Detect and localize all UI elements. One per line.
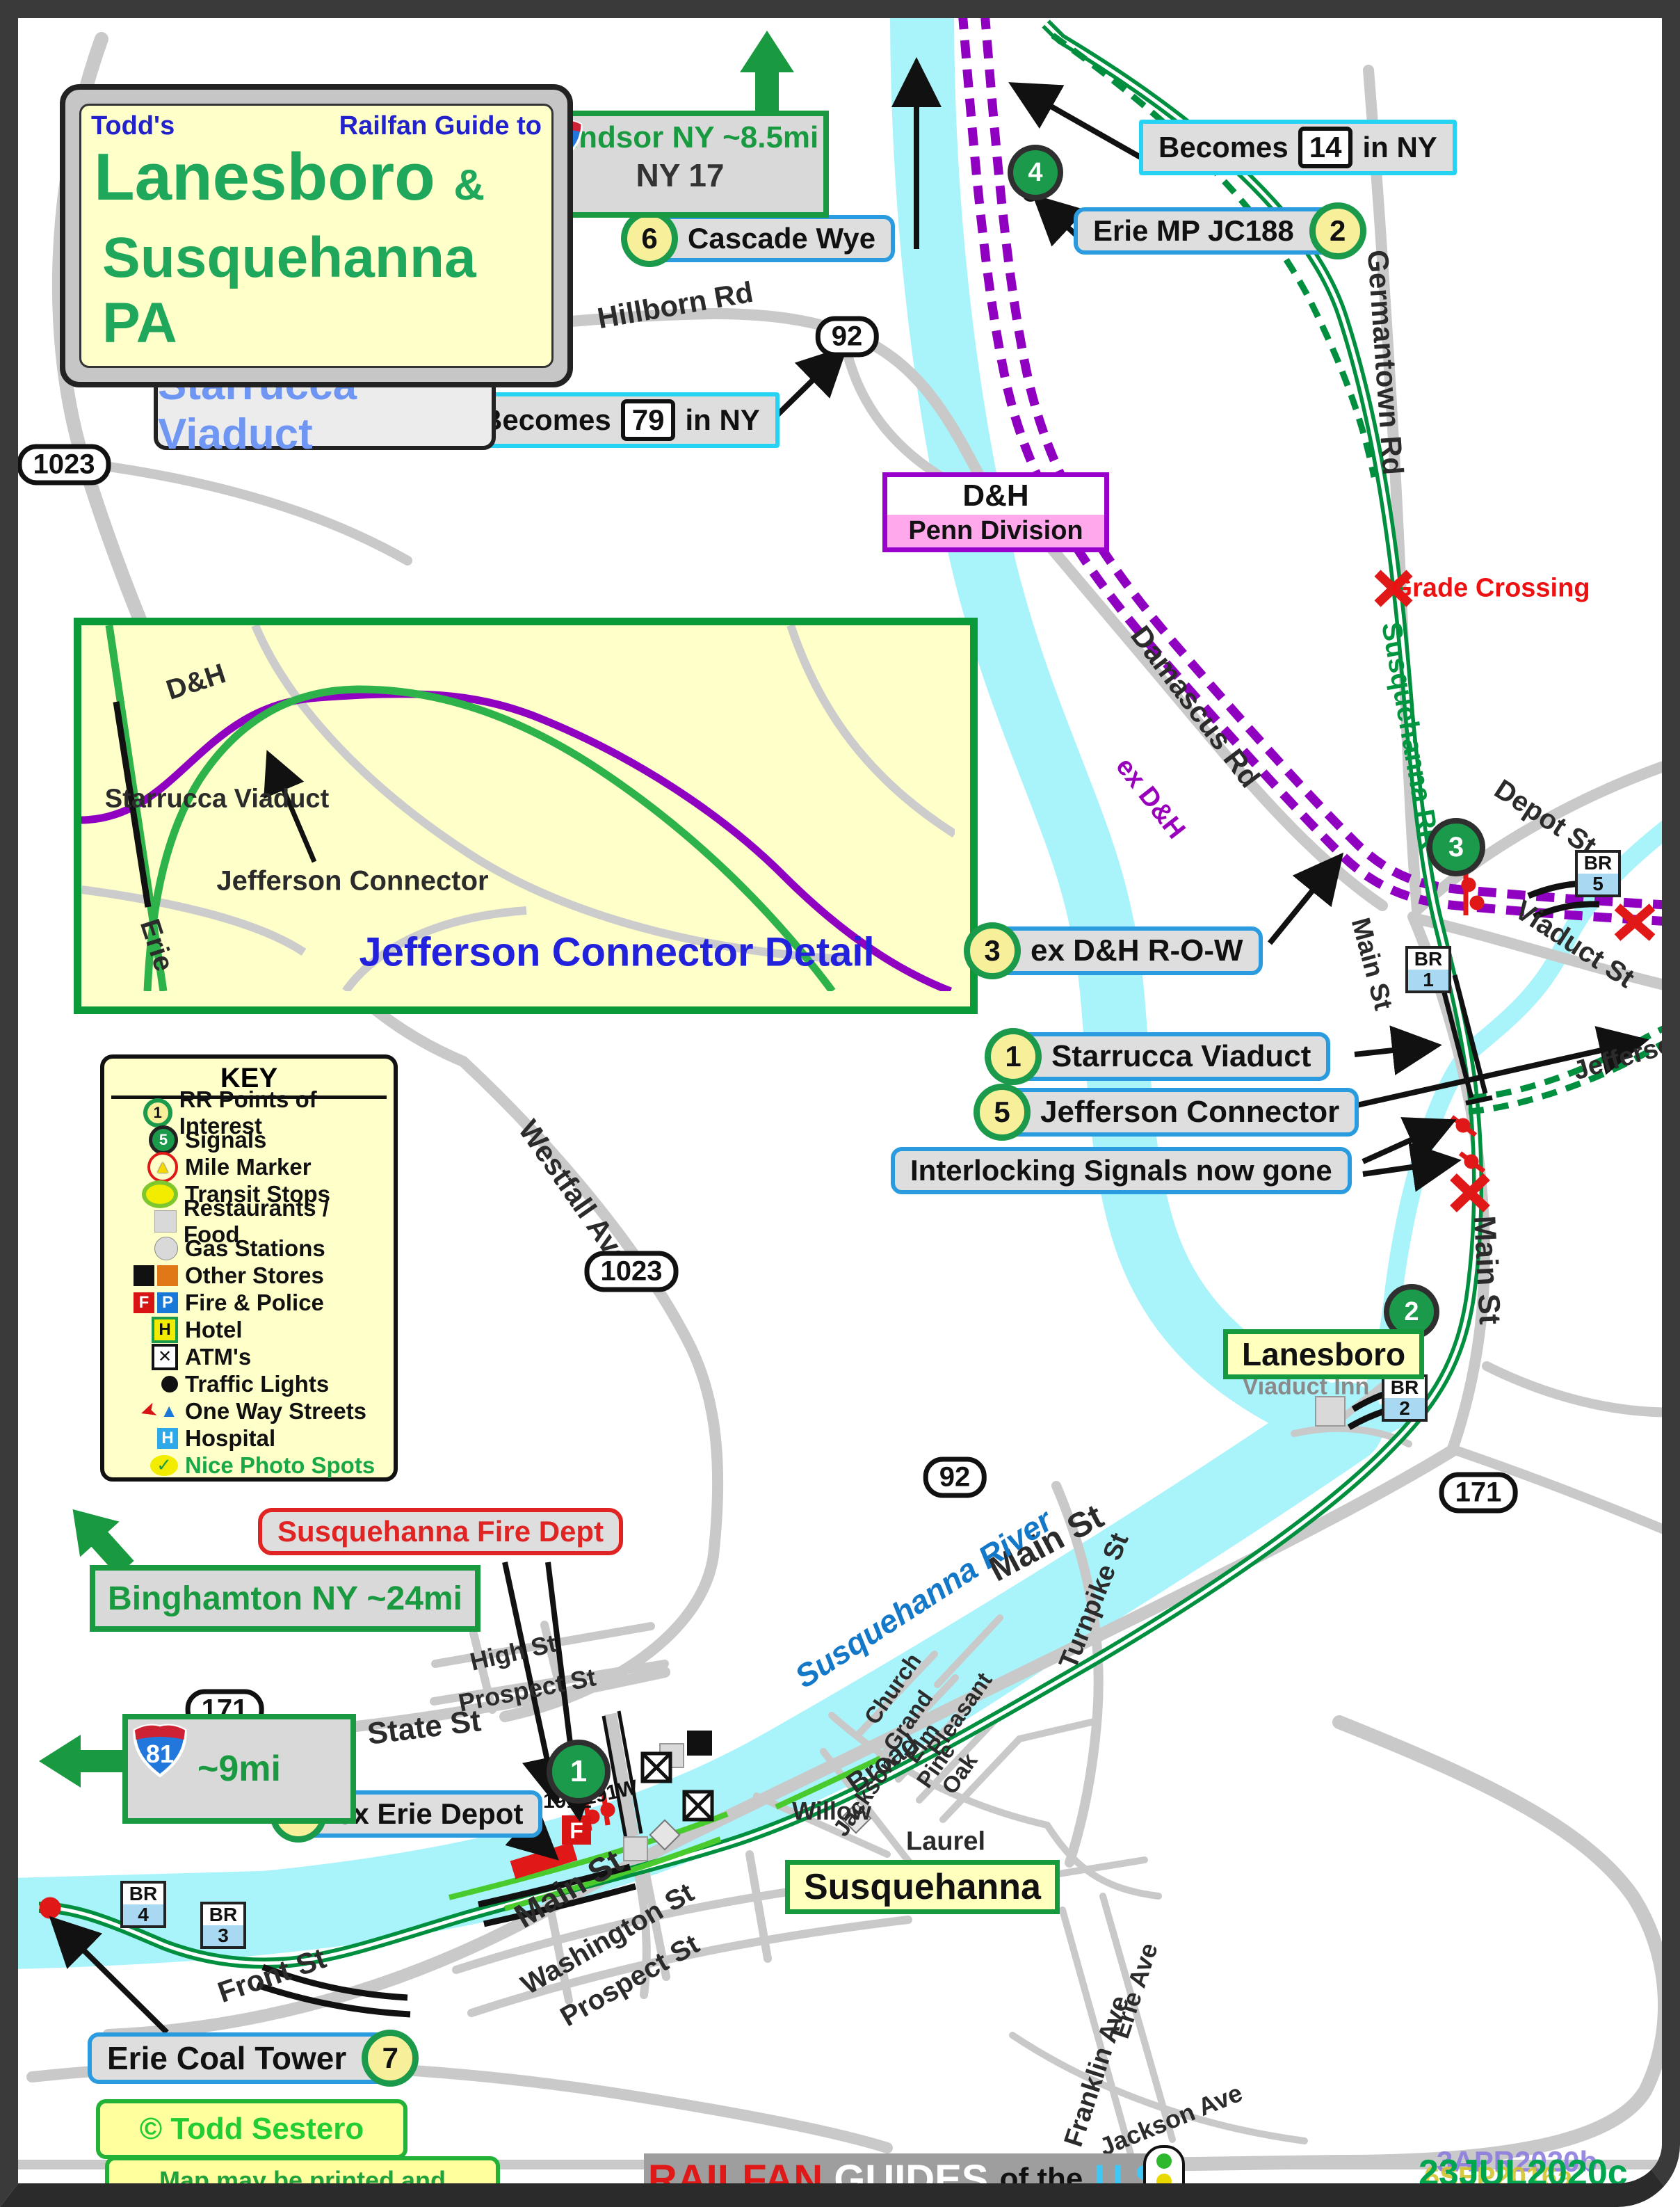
callout-text-after: in NY — [1362, 131, 1437, 164]
grade-crossing-grade-crossing: Grade Crossing — [1391, 574, 1590, 604]
callout-text: ex Erie Depot — [337, 1797, 523, 1831]
key-item-label: Nice Photo Spots — [185, 1452, 375, 1479]
callout-susquehanna-fire-dept: Susquehanna Fire Dept — [258, 1508, 623, 1555]
key-item-label: ATM's — [185, 1344, 251, 1370]
callout-text: Starrucca Viaduct — [1051, 1039, 1311, 1074]
title-line2: Susquehanna PA — [102, 225, 551, 356]
copyright-box: © Todd Sestero — [96, 2099, 407, 2159]
dh-label: D&H — [887, 477, 1104, 515]
i81-shield-icon: 81 — [128, 1719, 192, 1779]
bridge-badge-br4: BR4 — [120, 1881, 166, 1928]
bottom-strip — [18, 2190, 1680, 2207]
callout-text: Becomes — [1158, 131, 1289, 164]
signal-circle-1: 1 — [547, 1740, 611, 1804]
key-item-label: Fire & Police — [185, 1290, 324, 1316]
title-line1: Lanesboro & — [94, 139, 485, 216]
road-label-westfall-ave: Westfall Ave — [512, 1114, 637, 1274]
callout-starrucca-viaduct: Starrucca Viaduct1 — [1011, 1032, 1330, 1081]
ny17-label: NY 17 — [636, 157, 724, 194]
key-item-label: Hospital — [185, 1425, 275, 1452]
bridge-badge-br3: BR3 — [200, 1902, 246, 1949]
map-canvas: F — [0, 0, 1680, 2207]
road-label-main-st: Main St — [1467, 1215, 1507, 1326]
bridge-badge-br1: BR1 — [1405, 946, 1451, 993]
road-label-depot-st: Depot St — [1489, 773, 1601, 862]
key-item-label: Hotel — [185, 1317, 243, 1343]
road-label-jefferson: Jefferson — [1570, 1025, 1680, 1086]
usage-note-2: used for personal use only — [109, 2195, 496, 2207]
road-label-high-st: High St — [467, 1628, 559, 1676]
gas-icon — [111, 1237, 178, 1260]
signal-icon: 5 — [111, 1125, 178, 1155]
callout-erie-mp-jc188: Erie MP JC1882 — [1074, 207, 1340, 255]
key-item-oneway: ➤▲One Way Streets — [111, 1397, 387, 1424]
callout-text-after: in NY — [685, 403, 759, 437]
railfan-guides-logo: RAILFAN GUIDES of the U.S. — [644, 2153, 1177, 2205]
firepolice-icon: FP — [111, 1292, 178, 1313]
road-label-laurel: Laurel — [906, 1827, 985, 1857]
susquehanna-rr-susquehanna-rr: Susquehanna RR — [1375, 620, 1446, 852]
poi-circle-2: 2 — [1309, 202, 1366, 259]
callout-text: Becomes — [481, 403, 611, 437]
key-item-label: Other Stores — [185, 1262, 324, 1289]
road-label-hillborn-rd: Hillborn Rd — [595, 275, 755, 336]
road-label-willow: Willow — [792, 1797, 871, 1826]
callout-text: ex D&H R-O-W — [1031, 933, 1243, 968]
signal-circle-3: 3 — [1427, 818, 1485, 876]
atm-icon: ✕ — [111, 1344, 178, 1370]
route-marker-171: 171 — [1439, 1472, 1518, 1514]
guides-word: GUIDES — [834, 2156, 988, 2203]
poi-circle-5: 5 — [974, 1084, 1031, 1141]
title-panel: Todd's Railfan Guide to Lanesboro & Susq… — [60, 84, 573, 387]
callout-text: Jefferson Connector — [1040, 1095, 1339, 1130]
key-item-milemarker: ▲Mile Marker — [111, 1153, 387, 1180]
key-panel: KEY 1RR Points of Interest5Signals▲Mile … — [100, 1054, 398, 1482]
callout-text: Cascade Wye — [688, 222, 875, 255]
key-item-photo: ✓Nice Photo Spots — [111, 1452, 387, 1479]
poi-circle-3: 3 — [964, 922, 1021, 979]
road-label-viaduct-st: Viaduct St — [1509, 894, 1640, 995]
callout-text: Erie MP JC188 — [1093, 214, 1294, 248]
callout-text: Susquehanna Fire Dept — [277, 1515, 604, 1548]
key-item-label: Traffic Lights — [185, 1371, 329, 1397]
town-box-susquehanna: Susquehanna — [785, 1860, 1060, 1914]
penn-division-label: Penn Division — [887, 515, 1104, 547]
callout-becomes-79: Becomes79in NY — [462, 392, 780, 448]
key-item-traffic: Traffic Lights — [111, 1370, 387, 1397]
callout-jefferson-connector: Jefferson Connector5 — [1000, 1088, 1359, 1137]
signal-circle-4: 4 — [1008, 145, 1063, 200]
milemarker-icon: ▲ — [111, 1152, 178, 1182]
dh-penn-division-box: D&H Penn Division — [882, 472, 1109, 552]
title-guide: Railfan Guide to — [339, 111, 542, 141]
title-inner: Todd's Railfan Guide to Lanesboro & Susq… — [79, 104, 554, 368]
date-stamps: 3APR2020b 6SEP2016a 23JUL2020c — [1409, 2141, 1680, 2207]
poi-circle-7: 7 — [362, 2030, 419, 2087]
restaurant-icon — [111, 1210, 177, 1233]
traffic-signal-icon — [1143, 2145, 1185, 2207]
callout-text: Interlocking Signals now gone — [910, 1154, 1332, 1187]
poi-icon: 1 — [111, 1098, 172, 1127]
callout-text: Erie Coal Tower — [107, 2039, 346, 2077]
road-label-state-st: State St — [366, 1703, 483, 1752]
hotel-icon: H — [111, 1317, 178, 1343]
route-marker-92: 92 — [923, 1457, 987, 1498]
traffic-icon — [111, 1376, 178, 1393]
photo-icon: ✓ — [111, 1455, 178, 1476]
ex-dh-ex-d-h: ex D&H — [1109, 753, 1190, 845]
key-item-label: One Way Streets — [185, 1398, 366, 1424]
callout-cascade-wye: Cascade Wye6 — [647, 215, 895, 262]
title-todds: Todd's — [91, 111, 175, 141]
key-item-label: Gas Stations — [185, 1235, 325, 1262]
callout-becomes-14: Becomes14in NY — [1139, 120, 1457, 175]
road-label-main-st: Main St — [1345, 915, 1398, 1013]
stores-icon — [111, 1265, 178, 1286]
bridge-badge-br5: BR5 — [1575, 850, 1621, 897]
transit-icon — [111, 1180, 178, 1208]
route-marker-92: 92 — [816, 316, 879, 358]
route-number-box: 14 — [1298, 127, 1353, 168]
railfan-word: RAILFAN — [648, 2156, 823, 2203]
bridge-badge-br2: BR2 — [1382, 1374, 1428, 1422]
key-item-poi: 1RR Points of Interest — [111, 1099, 387, 1126]
i81-text: ~9mi — [197, 1748, 281, 1790]
binghamton-text: Binghamton NY ~24mi — [108, 1580, 462, 1618]
ofthe-word: of the — [1000, 2162, 1083, 2197]
i81-sign: 81 ~9mi — [122, 1714, 356, 1824]
usage-note-box: Map may be printed and used for personal… — [105, 2156, 500, 2207]
key-item-hospital: HHospital — [111, 1424, 387, 1452]
date-main: 23JUL2020c — [1419, 2152, 1628, 2194]
route-marker-1023: 1023 — [585, 1251, 679, 1292]
road-label-germantown-rd: Germantown Rd — [1361, 249, 1410, 476]
svg-text:81: 81 — [146, 1740, 174, 1768]
callout-ex-dh-row: ex D&H R-O-W3 — [990, 926, 1263, 975]
copyright-name: © Todd Sestero — [140, 2112, 364, 2146]
route-number-box: 79 — [621, 399, 676, 441]
road-label-front-st: Front St — [213, 1941, 330, 2009]
key-item-hotel: HHotel — [111, 1316, 387, 1343]
key-item-label: Mile Marker — [185, 1154, 312, 1180]
key-item-label: Signals — [185, 1127, 266, 1153]
town-box-lanesboro: Lanesboro — [1223, 1329, 1424, 1379]
key-item-atm: ✕ATM's — [111, 1343, 387, 1370]
poi-circle-6: 6 — [621, 210, 678, 267]
callout-interlocking-signals: Interlocking Signals now gone — [891, 1147, 1352, 1194]
route-marker-1023: 1023 — [17, 444, 111, 485]
callout-erie-coal-tower: Erie Coal Tower7 — [88, 2032, 392, 2084]
oneway-icon: ➤▲ — [111, 1399, 178, 1423]
windsor-sign: Windsor NY ~8.5mi 86 NY 17 — [531, 111, 829, 218]
poi-circle-1: 1 — [985, 1028, 1042, 1085]
hospital-icon: H — [111, 1428, 178, 1449]
key-item-stores: Other Stores — [111, 1262, 387, 1289]
binghamton-sign: Binghamton NY ~24mi — [90, 1565, 480, 1632]
usage-note-1: Map may be printed and — [109, 2166, 496, 2195]
key-item-restaurant: Restaurants / Food — [111, 1207, 387, 1235]
key-item-firepolice: FPFire & Police — [111, 1289, 387, 1316]
